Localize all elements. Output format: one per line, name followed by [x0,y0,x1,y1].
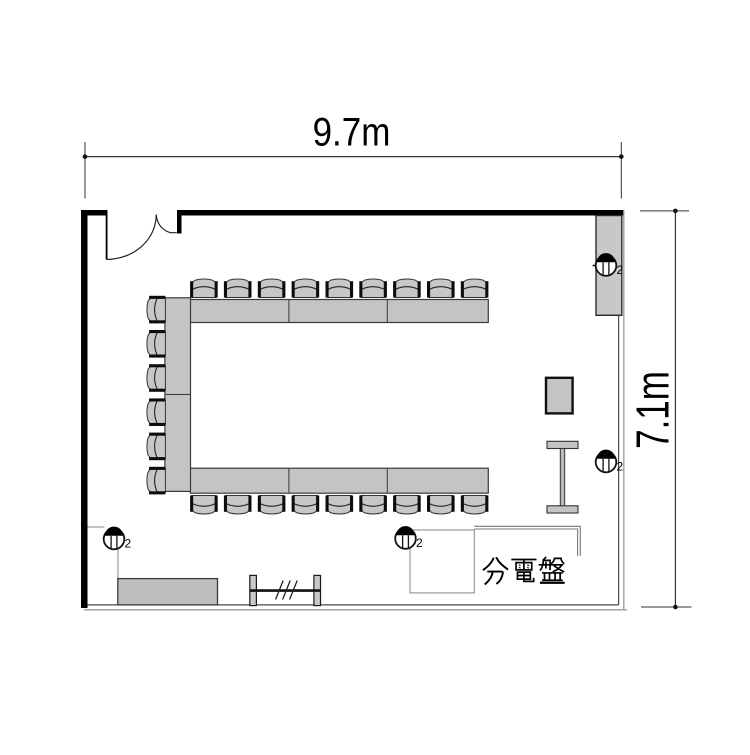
svg-text:2: 2 [617,460,624,474]
svg-text:7.1m: 7.1m [627,371,679,449]
svg-text:2: 2 [617,263,624,277]
svg-text:2: 2 [125,537,132,551]
svg-text:2: 2 [416,536,423,550]
svg-text:9.7m: 9.7m [313,109,391,153]
